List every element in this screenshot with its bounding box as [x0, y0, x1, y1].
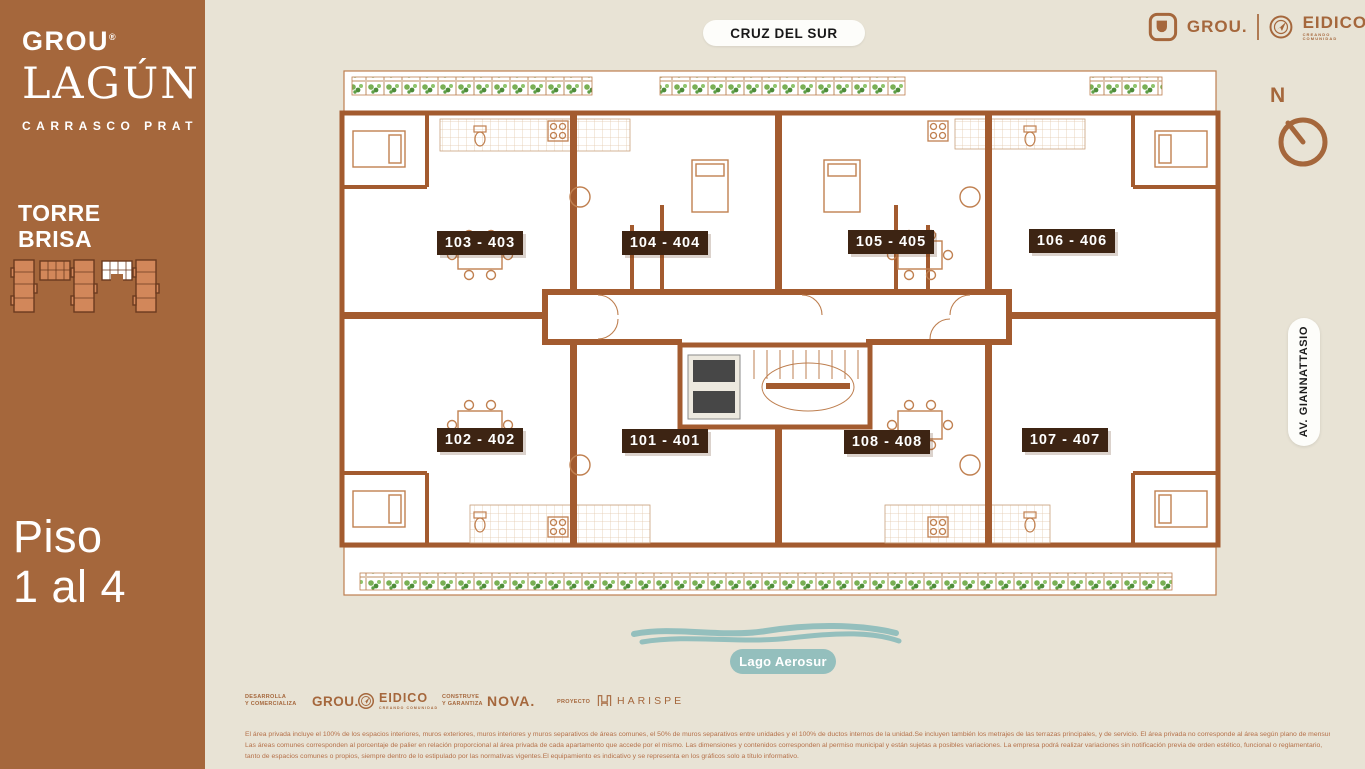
- registered-mark: ®: [109, 32, 117, 42]
- brand-subtitle: CARRASCO PRAT: [22, 119, 200, 133]
- legal-line-1: El área privada incluye el 100% de los e…: [245, 729, 1330, 740]
- unit-badge-105-405[interactable]: 105 - 405: [848, 230, 934, 254]
- sidebar: GROU® LAGÚN CARRASCO PRAT TORRE BRISA: [0, 0, 205, 769]
- street-label-cruz-del-sur: CRUZ DEL SUR: [703, 20, 865, 46]
- footer-eidico-tagline: CREANDO COMUNIDAD: [379, 707, 438, 711]
- unit-badge-107-407[interactable]: 107 - 407: [1022, 428, 1108, 452]
- credit-role-desarrolla: DESARROLLA Y COMERCIALIZA: [245, 694, 296, 709]
- floor-label-line2: 1 al 4: [13, 562, 126, 612]
- credit-role-desarrolla-line2: Y COMERCIALIZA: [245, 701, 296, 708]
- tower-name-line2: BRISA: [18, 226, 101, 252]
- credit-role-construye-line2: Y GARANTIZA: [442, 701, 483, 708]
- unit-badge-106-406[interactable]: 106 - 406: [1029, 229, 1115, 253]
- eidico-wordmark: EIDICO: [1303, 14, 1365, 31]
- legal-disclaimer: El área privada incluye el 100% de los e…: [245, 729, 1330, 763]
- brand-logo: GROU® LAGÚN CARRASCO PRAT: [22, 26, 200, 133]
- lake-waves-icon: [628, 620, 903, 650]
- footer-harispe-icon: [597, 693, 612, 708]
- brand-lagun: LAGÚN: [22, 59, 200, 109]
- legal-line-2: Las áreas comunes corresponden al porcen…: [245, 740, 1330, 751]
- unit-badge-104-404[interactable]: 104 - 404: [622, 231, 708, 255]
- partners-logos: GROU. EIDICO CREANDO COMUNIDAD: [1148, 12, 1365, 42]
- floor-plan-drawing: [330, 65, 1230, 600]
- unit-badge-108-408[interactable]: 108 - 408: [844, 430, 930, 454]
- street-label-av-giannattasio: AV. GIANNATTASIO: [1288, 318, 1320, 446]
- footer-grou-wordmark: GROU.: [312, 694, 359, 709]
- floor-plan: 103 - 403 104 - 404 105 - 405 106 - 406 …: [330, 65, 1230, 600]
- brand-grou-text: GROU: [22, 26, 109, 56]
- credit-role-construye: CONSTRUYE Y GARANTIZA: [442, 694, 483, 709]
- brand-grou: GROU®: [22, 26, 200, 57]
- floor-label-line1: Piso: [13, 512, 126, 562]
- legal-line-3: tanto de espacios comunes o propios, sie…: [245, 751, 1330, 762]
- lagun-floorplan-page: GROU® LAGÚN CARRASCO PRAT TORRE BRISA: [0, 0, 1365, 769]
- floor-range-label: Piso 1 al 4: [13, 512, 126, 613]
- grou-logo-icon: [1148, 12, 1178, 42]
- footer-eidico-wordmark: EIDICO: [379, 692, 438, 705]
- tower-name-line1: TORRE: [18, 200, 101, 226]
- credit-role-desarrolla-line1: DESARROLLA: [245, 694, 296, 701]
- unit-badge-102-402[interactable]: 102 - 402: [437, 428, 523, 452]
- eidico-wordmark-block: EIDICO CREANDO COMUNIDAD: [1303, 14, 1365, 41]
- eidico-tagline: CREANDO COMUNIDAD: [1303, 33, 1365, 41]
- site-minimap: [8, 256, 166, 316]
- minimap-building-other: [40, 261, 70, 280]
- minimap-notch: [111, 274, 123, 281]
- credit-role-proyecto: PROYECTO: [557, 699, 590, 706]
- unit-badge-101-401[interactable]: 101 - 401: [622, 429, 708, 453]
- footer-harispe-logo: HARISPE: [597, 693, 684, 708]
- lake-label: Lago Aerosur: [730, 649, 836, 674]
- footer-harispe-wordmark: HARISPE: [617, 695, 684, 707]
- tower-name: TORRE BRISA: [18, 200, 101, 253]
- footer-eidico-logo: EIDICO CREANDO COMUNIDAD: [357, 692, 438, 710]
- grou-wordmark: GROU.: [1187, 17, 1248, 37]
- eidico-logo-icon: [1268, 14, 1294, 40]
- footer-nova-wordmark: NOVA.: [487, 693, 535, 709]
- footer-eidico-icon: [357, 692, 375, 710]
- credit-role-construye-line1: CONSTRUYE: [442, 694, 483, 701]
- logo-divider: [1257, 14, 1259, 40]
- compass-north-label: N: [1270, 84, 1285, 108]
- unit-badge-103-403[interactable]: 103 - 403: [437, 231, 523, 255]
- compass-icon: [1272, 108, 1332, 170]
- street-label-av-text: AV. GIANNATTASIO: [1298, 326, 1310, 437]
